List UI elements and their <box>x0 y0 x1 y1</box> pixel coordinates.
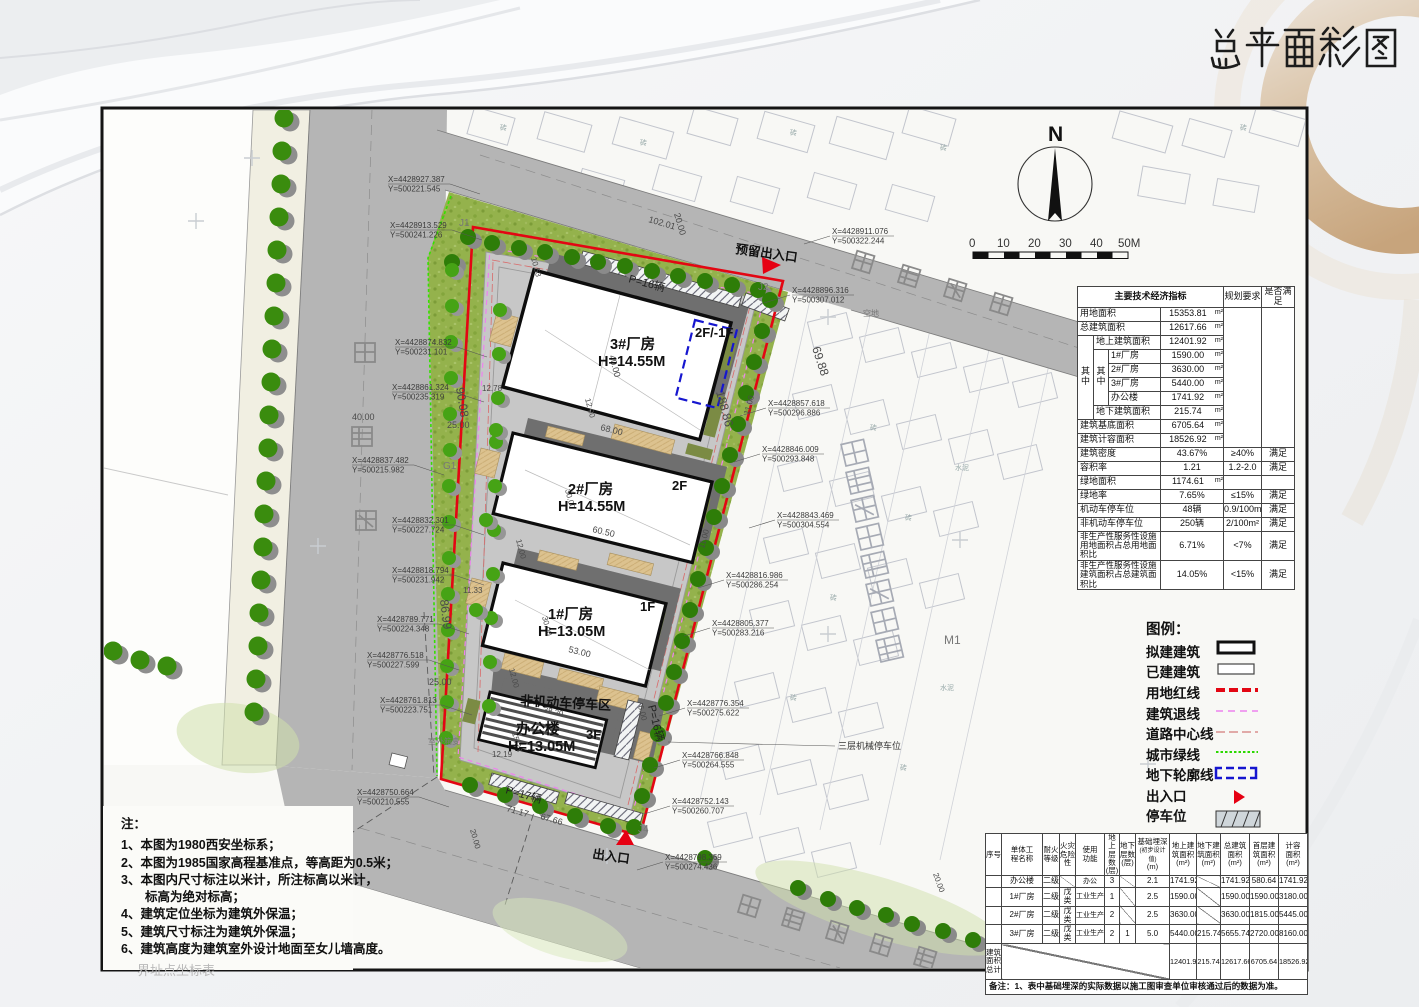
svg-text:Y=500231.942: Y=500231.942 <box>392 576 445 585</box>
svg-text:X=4428818.794: X=4428818.794 <box>392 566 449 575</box>
svg-text:X=4428798.369: X=4428798.369 <box>665 853 722 862</box>
svg-text:水泥: 水泥 <box>955 463 969 472</box>
svg-text:Y=500224.348: Y=500224.348 <box>377 625 430 634</box>
svg-text:X=4428913.529: X=4428913.529 <box>390 221 447 230</box>
svg-text:25.00: 25.00 <box>447 420 470 430</box>
svg-text:三层机械停车位: 三层机械停车位 <box>838 740 901 751</box>
svg-text:H=13.05M: H=13.05M <box>538 624 605 640</box>
svg-text:砖: 砖 <box>790 693 797 702</box>
svg-text:2#厂房: 2#厂房 <box>568 480 613 498</box>
svg-text:12.78: 12.78 <box>482 384 503 393</box>
svg-text:J1: J1 <box>459 218 470 229</box>
svg-text:X=4428832.301: X=4428832.301 <box>392 516 449 525</box>
svg-text:水泥: 水泥 <box>940 683 954 692</box>
svg-text:砖: 砖 <box>900 763 907 772</box>
svg-text:J2: J2 <box>758 282 769 293</box>
svg-text:X=4428896.316: X=4428896.316 <box>792 286 849 295</box>
svg-text:X=4428857.618: X=4428857.618 <box>768 399 825 408</box>
svg-text:1F: 1F <box>640 599 655 614</box>
svg-text:H=13.05M: H=13.05M <box>508 739 575 755</box>
svg-text:X=4428789.771: X=4428789.771 <box>377 615 434 624</box>
svg-text:X=4428911.076: X=4428911.076 <box>832 227 889 236</box>
svg-text:40.00: 40.00 <box>352 412 375 422</box>
svg-text:Y=500283.216: Y=500283.216 <box>712 629 765 638</box>
svg-text:10: 10 <box>997 238 1010 250</box>
svg-text:Y=500210.555: Y=500210.555 <box>357 798 410 807</box>
svg-text:砖: 砖 <box>790 128 797 137</box>
svg-text:2F: 2F <box>672 478 687 493</box>
svg-text:X=4428927.387: X=4428927.387 <box>388 175 445 184</box>
svg-text:Y=500221.545: Y=500221.545 <box>388 185 441 194</box>
svg-text:0: 0 <box>969 238 975 250</box>
svg-text:Y=500304.554: Y=500304.554 <box>777 521 830 530</box>
svg-text:1#厂房: 1#厂房 <box>548 605 593 623</box>
svg-text:X=4428861.324: X=4428861.324 <box>392 383 449 392</box>
svg-text:50M: 50M <box>1118 238 1140 250</box>
svg-text:室外箱变: 室外箱变 <box>428 736 460 746</box>
svg-text:X=4428750.664: X=4428750.664 <box>357 788 414 797</box>
svg-text:20: 20 <box>1028 238 1041 250</box>
svg-text:空地: 空地 <box>863 308 879 318</box>
svg-text:X=4428816.986: X=4428816.986 <box>726 571 783 580</box>
svg-text:砖: 砖 <box>830 593 837 602</box>
svg-text:3#厂房: 3#厂房 <box>610 335 655 353</box>
svg-text:X=4428843.469: X=4428843.469 <box>777 511 834 520</box>
svg-text:3F: 3F <box>586 727 601 742</box>
svg-text:Y=500223.751: Y=500223.751 <box>380 706 433 715</box>
svg-text:X=4428761.813: X=4428761.813 <box>380 696 437 705</box>
svg-text:Y=500307.012: Y=500307.012 <box>792 296 845 305</box>
svg-text:砖: 砖 <box>940 143 947 152</box>
svg-text:X=4428776.354: X=4428776.354 <box>687 699 744 708</box>
svg-text:40: 40 <box>1090 238 1103 250</box>
svg-text:Y=500235.319: Y=500235.319 <box>392 393 445 402</box>
svg-text:Y=500286.254: Y=500286.254 <box>726 581 779 590</box>
svg-text:N: N <box>1048 123 1063 146</box>
svg-text:G1: G1 <box>443 461 457 472</box>
svg-text:M1: M1 <box>944 633 961 647</box>
svg-text:X=4428837.482: X=4428837.482 <box>352 456 409 465</box>
svg-text:X=4428805.377: X=4428805.377 <box>712 619 769 628</box>
svg-text:砖: 砖 <box>905 513 912 522</box>
svg-text:砖: 砖 <box>1240 123 1247 132</box>
svg-text:Y=500227.599: Y=500227.599 <box>367 661 420 670</box>
svg-text:Y=500274.436: Y=500274.436 <box>665 863 718 872</box>
svg-text:X=4428846.009: X=4428846.009 <box>762 445 819 454</box>
svg-text:砖: 砖 <box>500 123 507 132</box>
svg-text:2F/-1F: 2F/-1F <box>695 325 733 340</box>
svg-text:30: 30 <box>1059 238 1072 250</box>
svg-text:Y=500241.226: Y=500241.226 <box>390 231 443 240</box>
svg-text:X=4428874.832: X=4428874.832 <box>395 338 452 347</box>
svg-text:砖: 砖 <box>870 423 877 432</box>
svg-text:X=4428766.848: X=4428766.848 <box>682 751 739 760</box>
svg-text:Y=500296.886: Y=500296.886 <box>768 409 821 418</box>
svg-text:X=4428752.143: X=4428752.143 <box>672 797 729 806</box>
svg-text:25.00: 25.00 <box>429 677 452 687</box>
svg-text:办公楼: 办公楼 <box>516 720 560 738</box>
svg-text:Y=500231.101: Y=500231.101 <box>395 348 448 357</box>
svg-text:H=14.55M: H=14.55M <box>598 354 665 370</box>
svg-text:H=14.55M: H=14.55M <box>558 499 625 515</box>
svg-text:Y=500227.724: Y=500227.724 <box>392 526 445 535</box>
svg-text:11.33: 11.33 <box>463 586 483 595</box>
svg-text:Y=500322.244: Y=500322.244 <box>832 237 885 246</box>
svg-text:Y=500215.982: Y=500215.982 <box>352 466 405 475</box>
svg-text:Y=500293.848: Y=500293.848 <box>762 455 815 464</box>
svg-text:J4: J4 <box>638 824 649 835</box>
svg-text:Y=500260.707: Y=500260.707 <box>672 807 725 816</box>
svg-text:Y=500264.555: Y=500264.555 <box>682 761 735 770</box>
svg-text:Y=500275.622: Y=500275.622 <box>687 709 740 718</box>
svg-text:砖: 砖 <box>640 138 647 147</box>
svg-text:X=4428776.518: X=4428776.518 <box>367 651 424 660</box>
